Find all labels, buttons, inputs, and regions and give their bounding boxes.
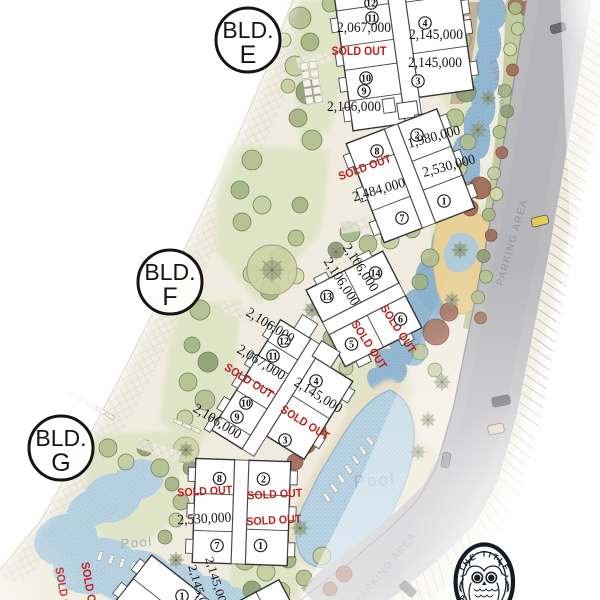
svg-text:1: 1 [258, 541, 263, 552]
svg-text:10: 10 [361, 73, 371, 84]
svg-text:SOLD OUT: SOLD OUT [332, 45, 387, 58]
svg-text:2,145,000: 2,145,000 [409, 27, 463, 43]
svg-text:9: 9 [362, 86, 367, 97]
svg-text:2,145,000: 2,145,000 [408, 55, 462, 71]
svg-text:6: 6 [398, 314, 403, 325]
svg-text:Pool: Pool [120, 534, 153, 551]
svg-text:9: 9 [235, 412, 240, 423]
svg-text:3: 3 [283, 435, 288, 446]
svg-text:BLD.: BLD. [222, 17, 273, 43]
svg-text:5: 5 [349, 339, 354, 350]
svg-text:13: 13 [322, 292, 332, 303]
svg-text:12: 12 [366, 0, 376, 9]
svg-text:14: 14 [371, 268, 381, 279]
svg-text:1: 1 [442, 196, 447, 207]
svg-text:BLD.: BLD. [144, 259, 195, 285]
svg-text:12: 12 [279, 336, 289, 347]
svg-text:2: 2 [261, 474, 266, 485]
svg-text:F: F [162, 283, 177, 311]
svg-text:1: 1 [180, 591, 185, 600]
svg-text:7: 7 [215, 541, 220, 552]
svg-text:E: E [240, 41, 257, 69]
svg-text:BLD.: BLD. [35, 425, 86, 451]
svg-text:7: 7 [400, 213, 405, 224]
svg-text:G: G [51, 449, 70, 477]
svg-text:2,530,000: 2,530,000 [177, 510, 232, 529]
svg-text:2,106,000: 2,106,000 [327, 99, 381, 115]
svg-text:3: 3 [416, 76, 421, 87]
svg-text:2,067,000: 2,067,000 [337, 20, 391, 36]
svg-text:10: 10 [241, 398, 251, 409]
